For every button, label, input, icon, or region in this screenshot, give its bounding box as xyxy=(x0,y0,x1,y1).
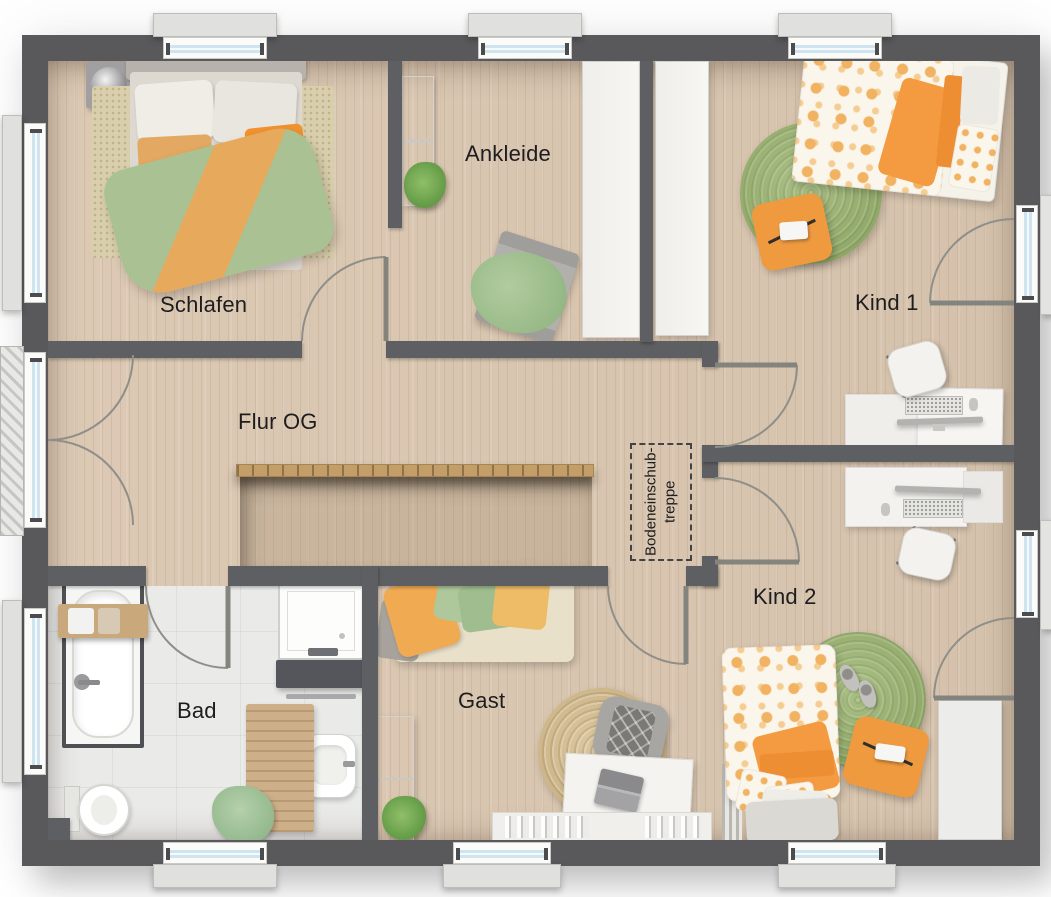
room-label-flur-og: Flur OG xyxy=(238,409,318,435)
window xyxy=(788,842,886,864)
room-label-schlafen: Schlafen xyxy=(160,292,247,318)
room-label-ankleide: Ankleide xyxy=(465,141,551,167)
window-sill xyxy=(778,13,892,37)
room-label-kind2: Kind 2 xyxy=(753,584,817,610)
window-glass xyxy=(1024,534,1032,613)
window-glass xyxy=(32,131,40,295)
attic-stairs-label-line1: Bodeneinschub- xyxy=(642,448,661,556)
window xyxy=(163,842,267,864)
balcony-threshold xyxy=(0,346,24,536)
window-door xyxy=(1016,205,1038,303)
window-glass xyxy=(168,850,262,858)
window-sill xyxy=(778,864,896,888)
room-label-gast: Gast xyxy=(458,688,505,714)
window-sill xyxy=(2,600,22,783)
window-glass xyxy=(1024,210,1032,298)
exterior-shutter xyxy=(1040,520,1051,630)
window xyxy=(24,123,46,303)
window-glass xyxy=(32,616,40,768)
window-sill xyxy=(153,864,277,888)
window-glass xyxy=(793,850,881,858)
window xyxy=(163,37,267,59)
exterior-shutter xyxy=(1040,195,1051,315)
attic-stairs-label-line2: treppe xyxy=(661,448,680,556)
window-glass xyxy=(168,45,262,53)
window-sill xyxy=(443,864,561,888)
window-door xyxy=(1016,530,1038,618)
french-door xyxy=(24,352,46,528)
attic-stairs-label: Bodeneinschub- treppe xyxy=(642,448,680,556)
floorplan: Schlafen Ankleide Kind 1 Flur OG Bad Gas… xyxy=(0,0,1051,897)
window-glass xyxy=(793,45,878,53)
window-glass xyxy=(32,360,40,520)
window-glass xyxy=(458,850,546,858)
attic-stairs-box: Bodeneinschub- treppe xyxy=(630,443,692,561)
window-sill xyxy=(153,13,277,37)
window xyxy=(478,37,572,59)
window xyxy=(24,608,46,775)
window xyxy=(453,842,551,864)
window xyxy=(788,37,882,59)
window-sill xyxy=(2,115,22,311)
room-label-kind1: Kind 1 xyxy=(855,290,919,316)
window-glass xyxy=(483,45,568,53)
window-sill xyxy=(468,13,582,37)
room-label-bad: Bad xyxy=(177,698,217,724)
